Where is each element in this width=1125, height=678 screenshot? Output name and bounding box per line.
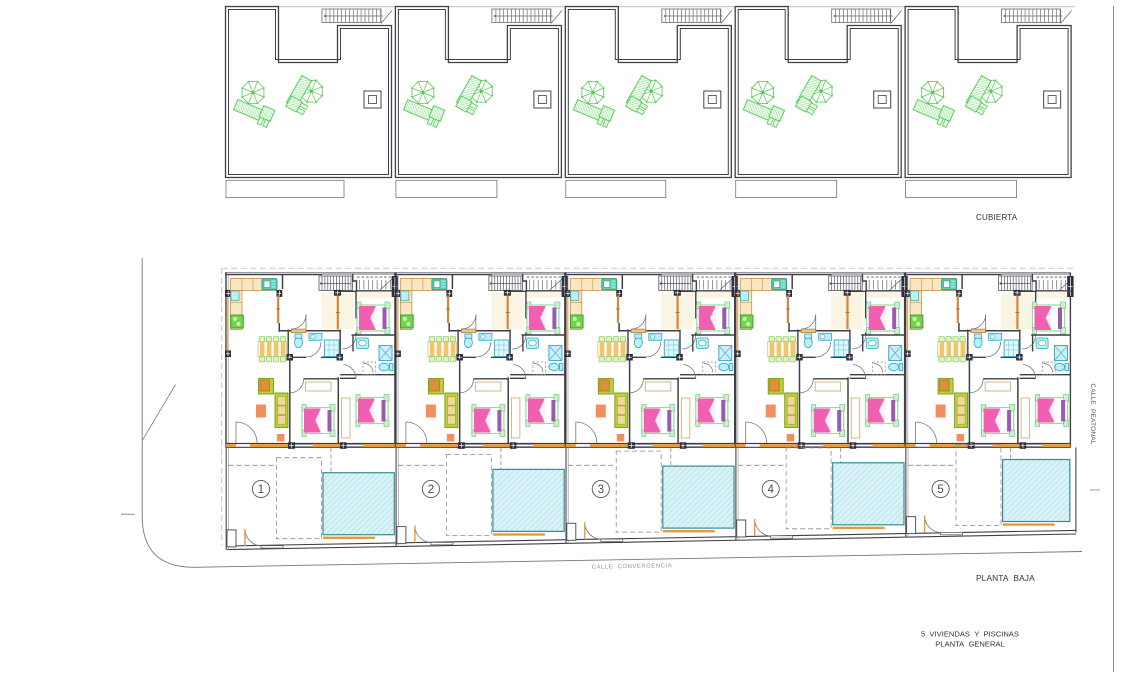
- svg-text:CALLE PEATONAL: CALLE PEATONAL: [1089, 383, 1096, 444]
- svg-text:PLANTA BAJA: PLANTA BAJA: [976, 573, 1035, 583]
- svg-text:PLANTA GENERAL: PLANTA GENERAL: [935, 640, 1005, 649]
- svg-text:1: 1: [258, 484, 264, 496]
- svg-text:2: 2: [428, 484, 434, 496]
- svg-text:CUBIERTA: CUBIERTA: [976, 213, 1018, 222]
- svg-text:5: 5: [937, 484, 943, 496]
- svg-text:5 VIVIENDAS Y PISCINAS: 5 VIVIENDAS Y PISCINAS: [921, 630, 1019, 639]
- svg-text:3: 3: [598, 484, 604, 496]
- svg-text:4: 4: [767, 484, 774, 496]
